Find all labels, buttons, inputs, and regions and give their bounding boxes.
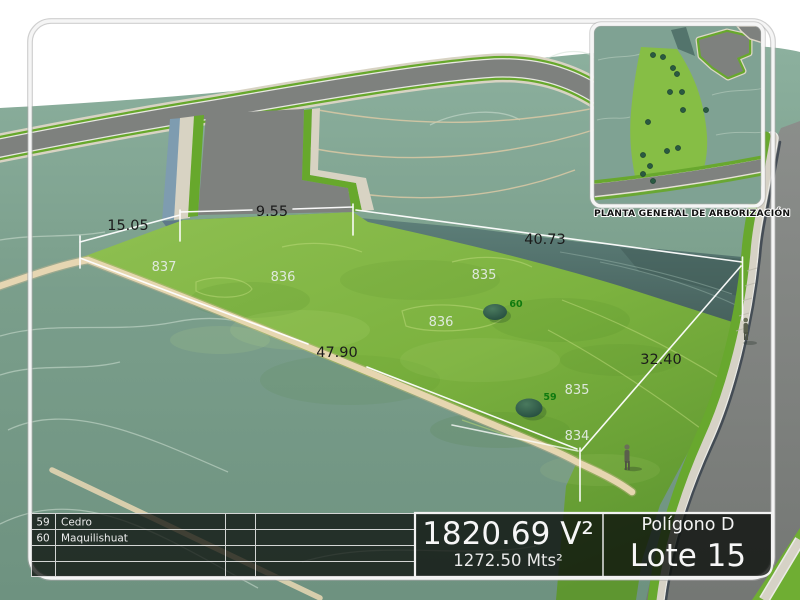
scene-render: 60 59 837 836 835 836 835 834 15.05 9.55… <box>0 0 800 600</box>
tree-59 <box>516 399 543 418</box>
dimension-label: 15.05 <box>107 218 149 234</box>
legend-species: Cedro <box>61 517 92 529</box>
title-block: 1820.69 V² 1272.50 Mts² Polígono D Lote … <box>415 513 772 577</box>
contour-label: 835 <box>565 383 590 398</box>
tree-marker-label: 59 <box>543 392 556 403</box>
inset-plan-view <box>594 26 763 204</box>
contour-label: 836 <box>271 270 296 285</box>
contour-label: 836 <box>429 315 454 330</box>
tree-marker-label: 60 <box>509 299 523 310</box>
lot-presentation: 60 59 837 836 835 836 835 834 15.05 9.55… <box>0 0 800 600</box>
dimension-label: 47.90 <box>316 345 358 361</box>
area-value-meters: 1272.50 Mts² <box>453 551 562 570</box>
legend-species: Maquilishuat <box>61 533 128 545</box>
legend-code: 59 <box>36 517 49 529</box>
tree-60 <box>483 304 507 320</box>
lot-name: Lote 15 <box>630 538 746 574</box>
polygon-name: Polígono D <box>641 515 734 535</box>
contour-label: 835 <box>472 268 497 283</box>
dimension-label: 32.40 <box>640 352 682 368</box>
arborization-inset: PLANTA GENERAL DE ARBORIZACIÓN <box>592 24 790 219</box>
area-value-varas: 1820.69 V² <box>422 516 594 552</box>
dimension-label: 40.73 <box>524 232 566 248</box>
inset-caption: PLANTA GENERAL DE ARBORIZACIÓN <box>594 207 790 219</box>
legend-code: 60 <box>36 533 49 545</box>
legend-table: 59 Cedro 60 Maquilishuat <box>31 513 415 577</box>
contour-label: 834 <box>565 429 590 444</box>
dimension-label: 9.55 <box>256 204 288 220</box>
contour-label: 837 <box>152 260 177 275</box>
